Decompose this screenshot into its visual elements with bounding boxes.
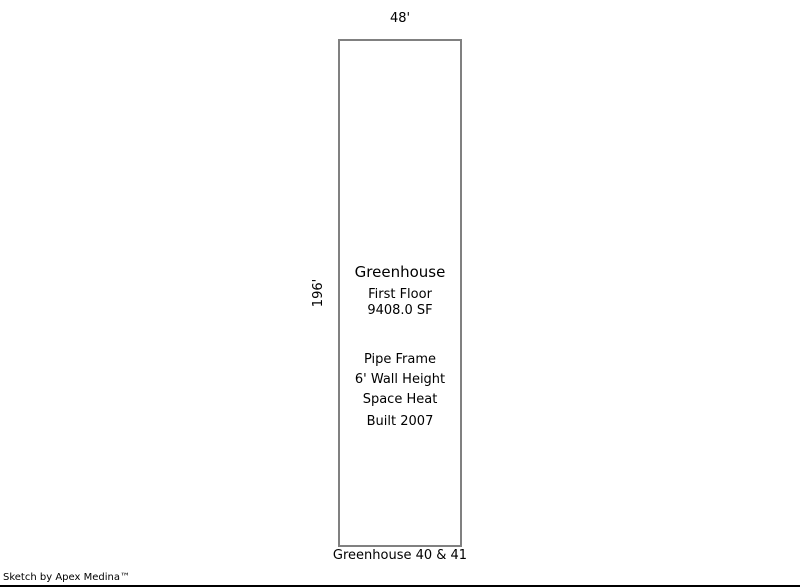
frame-type-label: Pipe Frame — [318, 353, 482, 367]
year-built-label: Built 2007 — [318, 415, 482, 429]
sketch-canvas: 48' 196' Greenhouse First Floor 9408.0 S… — [0, 0, 800, 587]
wall-height-label: 6' Wall Height — [318, 373, 482, 387]
area-title: Greenhouse — [318, 264, 482, 281]
sketch-credit: Sketch by Apex Medina™ — [3, 572, 130, 584]
top-dimension-label: 48' — [338, 12, 462, 26]
heating-label: Space Heat — [318, 393, 482, 407]
square-feet-label: 9408.0 SF — [318, 304, 482, 318]
sketch-caption: Greenhouse 40 & 41 — [288, 549, 512, 563]
floor-label: First Floor — [318, 288, 482, 302]
